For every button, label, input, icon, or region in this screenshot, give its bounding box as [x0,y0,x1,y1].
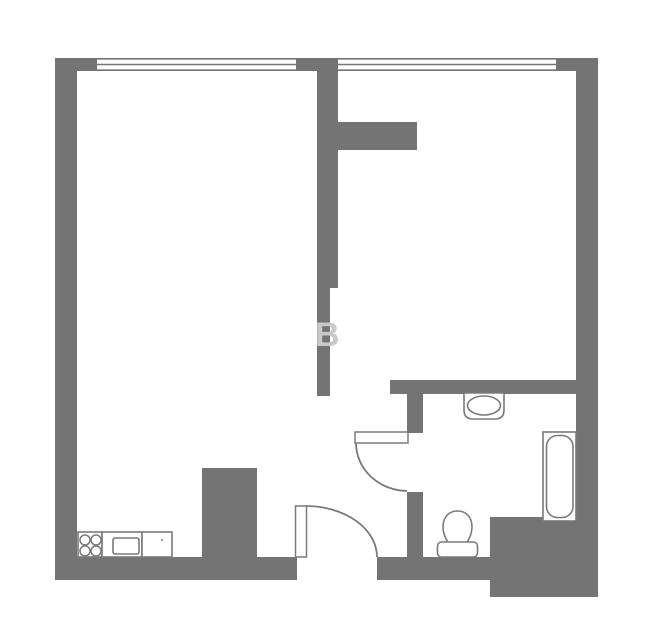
pillar-closet-block [202,468,257,557]
bottom-wall-middle [377,557,490,580]
sink-icon [464,393,504,419]
door-swing-icon [356,443,407,491]
top-wall-segment-middle [296,58,338,71]
toilet-icon [438,511,478,557]
interior-walls [202,71,576,557]
bathroom-door [355,432,408,491]
stove-icon [78,532,102,557]
bottom-right-wall-block [490,517,598,597]
entry-door-leaf [296,506,307,557]
bathroom-wall-horizontal [390,380,576,394]
right-wall [576,58,598,597]
stub-wall-top [338,122,417,150]
oven-icon [102,532,142,557]
kitchen-fixtures [78,532,172,557]
window-right [338,58,556,71]
kitchen-counter-icon [142,532,172,557]
door-swing-icon [306,506,377,557]
floor-plan: B [0,0,645,636]
bottom-wall-left [55,557,297,580]
floor-plan-drawing: B [0,0,645,636]
bathroom-wall-stub-upper [407,394,423,433]
entry-door [296,506,378,557]
partition-wall-upper [317,71,338,288]
doors [296,432,409,557]
bathroom-wall-stub-lower [407,492,423,557]
top-wall-segment-left [55,58,97,71]
window-left [97,58,296,71]
bathtub-icon [543,432,576,521]
watermark-letter: B [315,316,340,354]
bathroom-door-leaf [355,432,408,443]
left-wall [55,58,77,580]
